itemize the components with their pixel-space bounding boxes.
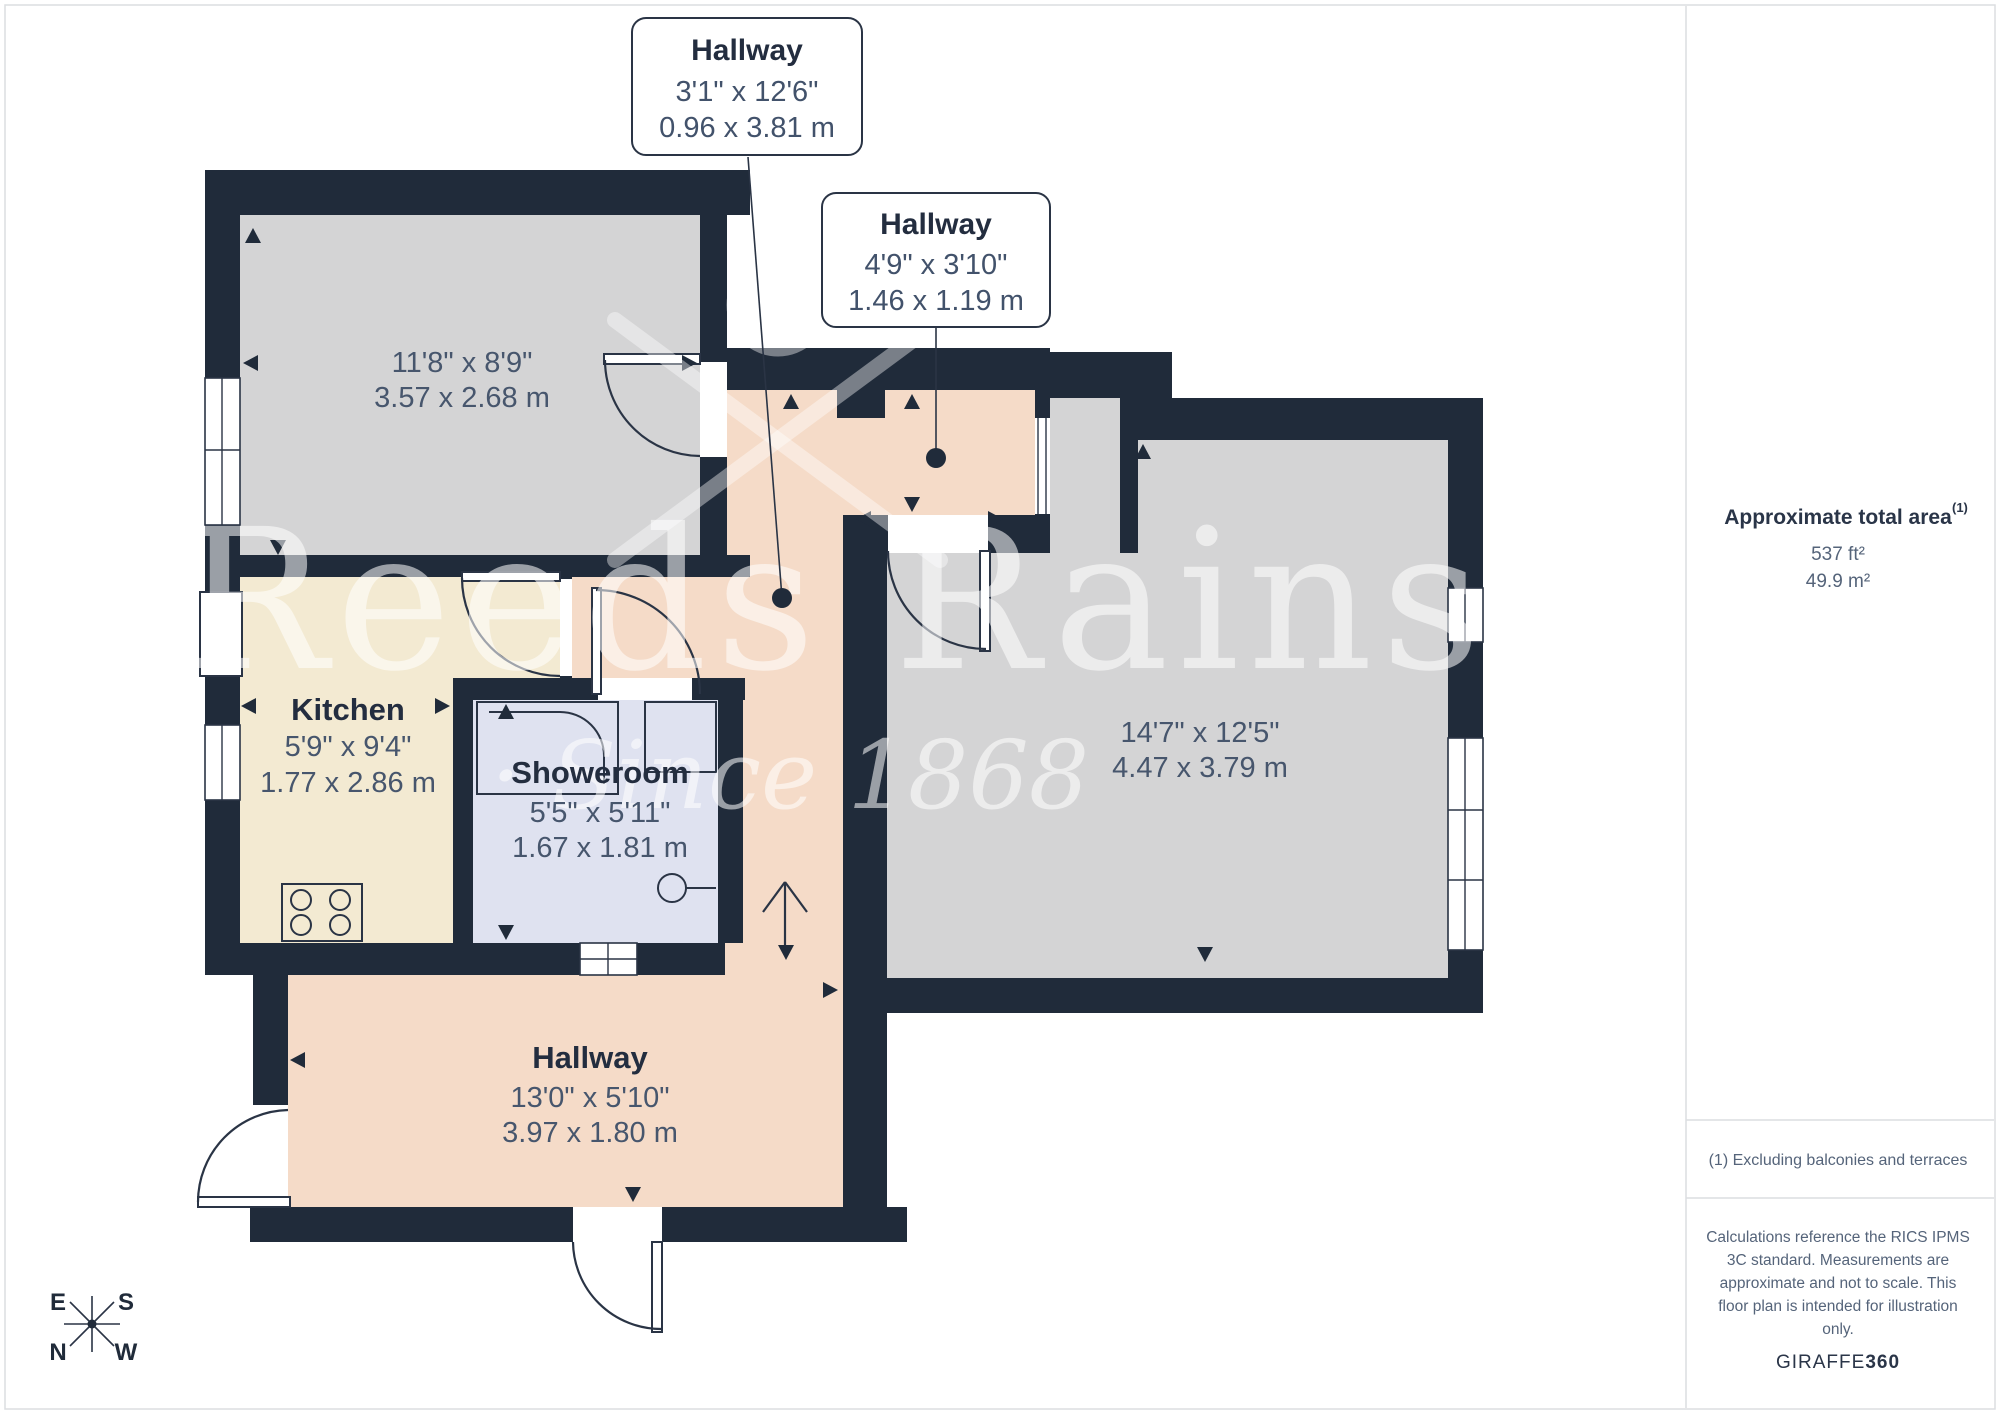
hallway-name: Hallway xyxy=(532,1040,648,1075)
living-metric: 4.47 x 3.79 m xyxy=(1112,752,1288,784)
window-showeroom xyxy=(580,943,637,975)
hallway-metric: 3.97 x 1.80 m xyxy=(502,1117,678,1149)
living-imperial: 14'7" x 12'5" xyxy=(1120,717,1279,749)
showeroom-imperial: 5'5" x 5'11" xyxy=(530,797,671,829)
callout-hallway-1: Hallway 3'1" x 12'6" 0.96 x 3.81 m xyxy=(632,18,862,155)
callout1-metric: 0.96 x 3.81 m xyxy=(659,112,835,144)
hallway-imperial: 13'0" x 5'10" xyxy=(510,1082,669,1114)
kitchen-imperial: 5'9" x 9'4" xyxy=(285,731,412,763)
showeroom-metric: 1.67 x 1.81 m xyxy=(512,832,688,864)
sidebar-disclaimer-line3: approximate and not to scale. This xyxy=(1720,1275,1957,1292)
sidebar-area-metric: 49.9 m² xyxy=(1806,571,1870,592)
compass-west: W xyxy=(115,1339,138,1366)
top-left-room-metric: 3.57 x 2.68 m xyxy=(374,382,550,414)
callout2-name: Hallway xyxy=(880,208,992,241)
callout1-imperial: 3'1" x 12'6" xyxy=(676,76,819,108)
sidebar-footnote: (1) Excluding balconies and terraces xyxy=(1709,1152,1968,1169)
floorplan-canvas: Reeds Rains · Since 1868 11'8" x 8'9" 3.… xyxy=(0,0,2000,1414)
sidebar-disclaimer-line1: Calculations reference the RICS IPMS xyxy=(1706,1229,1970,1246)
sidebar: Approximate total area (1) 537 ft² 49.9 … xyxy=(1686,6,1994,1408)
kitchen-metric: 1.77 x 2.86 m xyxy=(260,767,436,799)
sidebar-title-superscript: (1) xyxy=(1952,500,1968,515)
compass-rose: E S N W xyxy=(49,1289,137,1366)
sidebar-disclaimer-line4: floor plan is intended for illustration xyxy=(1718,1298,1958,1315)
callout-hallway-2: Hallway 4'9" x 3'10" 1.46 x 1.19 m xyxy=(822,193,1050,327)
floorplan-page: Reeds Rains · Since 1868 11'8" x 8'9" 3.… xyxy=(0,0,2000,1414)
window-living-large xyxy=(1448,738,1483,950)
sidebar-area-imperial: 537 ft² xyxy=(1811,544,1865,565)
compass-east: E xyxy=(50,1289,66,1316)
showeroom-name: Showeroom xyxy=(511,755,688,790)
sidebar-disclaimer-line5: only. xyxy=(1822,1321,1854,1338)
label-showeroom: Showeroom 5'5" x 5'11" 1.67 x 1.81 m xyxy=(511,755,688,864)
callout1-name: Hallway xyxy=(691,34,803,67)
door-exterior-entrance xyxy=(573,1242,662,1332)
compass-north: N xyxy=(49,1339,66,1366)
window-kitchen xyxy=(205,725,240,800)
watermark-brand: Reeds Rains xyxy=(181,487,1489,714)
callout2-metric: 1.46 x 1.19 m xyxy=(848,285,1024,317)
sidebar-disclaimer-line2: 3C standard. Measurements are xyxy=(1727,1252,1949,1269)
sidebar-title: Approximate total area xyxy=(1724,506,1952,529)
top-left-room-imperial: 11'8" x 8'9" xyxy=(392,347,533,379)
kitchen-name: Kitchen xyxy=(291,692,405,727)
callout2-imperial: 4'9" x 3'10" xyxy=(865,249,1008,281)
compass-south: S xyxy=(118,1289,134,1316)
giraffe360-logo: GIRAFFE360 xyxy=(1776,1352,1900,1373)
